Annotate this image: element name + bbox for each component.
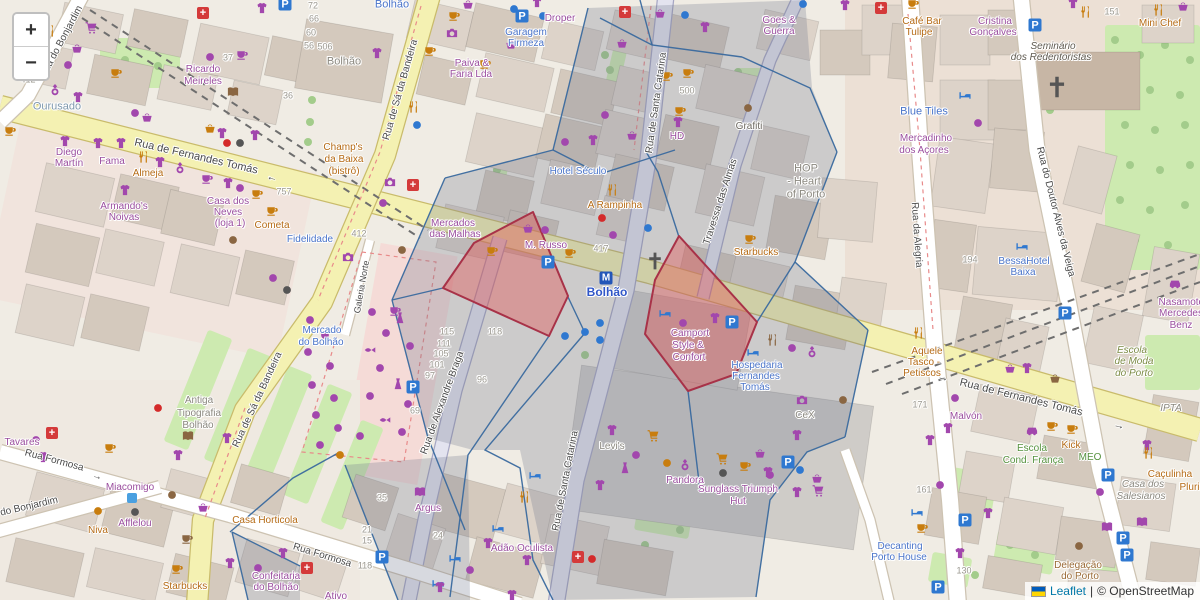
ts-icon xyxy=(60,136,69,146)
cup-icon xyxy=(745,235,755,244)
ts-icon xyxy=(116,138,125,148)
ts-icon xyxy=(925,435,934,445)
dot-icon xyxy=(561,138,569,146)
dot-icon xyxy=(269,274,277,282)
ts-icon xyxy=(522,555,531,565)
dot-icon xyxy=(236,139,244,147)
ts-icon xyxy=(217,128,226,138)
bk-icon xyxy=(142,114,151,122)
fk-icon xyxy=(1154,4,1162,15)
ts-icon xyxy=(93,138,102,148)
dot-icon xyxy=(376,364,384,372)
cup-icon xyxy=(565,249,575,258)
dot-icon xyxy=(1075,542,1083,550)
cup-icon xyxy=(675,107,685,116)
ts-icon xyxy=(250,130,259,140)
dot-icon xyxy=(64,61,72,69)
fk-icon xyxy=(768,334,776,345)
dot-icon xyxy=(406,342,414,350)
dot-icon xyxy=(366,392,374,400)
dot-icon xyxy=(681,11,689,19)
rg-icon xyxy=(682,459,689,470)
car-icon xyxy=(1170,281,1180,289)
cup-icon xyxy=(487,247,497,256)
dot-icon xyxy=(644,224,652,232)
dot-icon xyxy=(719,469,727,477)
dot-icon xyxy=(796,466,804,474)
ts-icon xyxy=(1068,0,1077,8)
dot-icon xyxy=(561,332,569,340)
ts-icon xyxy=(222,433,231,443)
bk-icon xyxy=(655,10,664,18)
dot-icon xyxy=(312,411,320,419)
cr-icon xyxy=(1050,77,1064,97)
bo-icon xyxy=(228,87,238,96)
bk-icon xyxy=(812,475,821,483)
bo-icon xyxy=(415,487,425,496)
cup-icon xyxy=(449,12,459,21)
dot-icon xyxy=(466,566,474,574)
cup-icon xyxy=(5,127,15,136)
dot-icon xyxy=(254,564,262,572)
cup-icon xyxy=(237,51,247,60)
dot-icon xyxy=(131,109,139,117)
ts-icon xyxy=(155,157,164,167)
dot-icon xyxy=(936,481,944,489)
attribution-separator: | xyxy=(1090,584,1093,598)
ts-icon xyxy=(483,538,492,548)
dot-icon xyxy=(398,246,406,254)
cup-icon xyxy=(111,69,121,78)
cup-icon xyxy=(252,190,262,199)
ts-icon xyxy=(532,0,541,7)
bk-icon xyxy=(1050,375,1059,383)
dot-icon xyxy=(404,400,412,408)
dot-icon xyxy=(321,331,329,339)
ts-icon xyxy=(792,430,801,440)
bk-icon xyxy=(72,45,81,53)
dot-icon xyxy=(744,104,752,112)
fk-icon xyxy=(520,491,528,502)
rg-icon xyxy=(52,84,59,95)
cup-icon xyxy=(105,444,115,453)
ct-icon xyxy=(86,22,97,33)
bd-icon xyxy=(492,525,503,532)
ts-icon xyxy=(840,0,849,10)
bo-icon xyxy=(183,431,193,440)
dot-icon xyxy=(413,121,421,129)
cam-icon xyxy=(385,178,395,186)
zoom-out-button[interactable]: − xyxy=(14,47,48,79)
dot-icon xyxy=(596,319,604,327)
bd-icon xyxy=(959,92,970,99)
dot-icon xyxy=(334,424,342,432)
dot-icon xyxy=(663,459,671,467)
cam-icon xyxy=(447,29,457,37)
dot-icon xyxy=(308,381,316,389)
dot-icon xyxy=(223,139,231,147)
map-icons-layer xyxy=(0,0,1200,600)
dot-icon xyxy=(541,226,549,234)
cam-icon xyxy=(343,253,353,261)
dot-icon xyxy=(356,432,364,440)
bk-icon xyxy=(627,132,636,140)
ts-icon xyxy=(278,548,287,558)
rg-icon xyxy=(177,162,184,173)
ts-icon xyxy=(257,3,266,13)
dot-icon xyxy=(839,396,847,404)
fk-icon xyxy=(409,101,417,112)
dot-icon xyxy=(598,214,606,222)
ts-icon xyxy=(372,48,381,58)
bo-icon xyxy=(1137,517,1147,526)
dr-icon xyxy=(395,378,402,389)
dot-icon xyxy=(596,336,604,344)
bk-icon xyxy=(617,40,626,48)
dot-icon xyxy=(32,436,40,444)
cup-icon xyxy=(662,72,672,81)
cup-icon xyxy=(480,60,490,69)
ts-icon xyxy=(73,92,82,102)
ukraine-flag-icon xyxy=(1031,586,1046,597)
cup-icon xyxy=(202,175,212,184)
map-canvas[interactable]: PPPPPPPPPPPPPPM+++++++ 50641237367266605… xyxy=(0,0,1200,600)
bd-icon xyxy=(911,509,922,516)
ct-icon xyxy=(648,430,659,441)
ts-icon xyxy=(595,480,604,490)
cup-icon xyxy=(683,69,693,78)
dot-icon xyxy=(131,508,139,516)
dot-icon xyxy=(368,308,376,316)
dot-icon xyxy=(601,111,609,119)
ts-icon xyxy=(983,508,992,518)
dot-icon xyxy=(304,348,312,356)
dot-icon xyxy=(168,491,176,499)
ts-icon xyxy=(955,548,964,558)
ts-icon xyxy=(173,450,182,460)
bd-icon xyxy=(659,310,670,317)
fi-icon xyxy=(365,347,376,352)
dot-icon xyxy=(398,428,406,436)
dr-icon xyxy=(397,312,404,323)
dot-icon xyxy=(382,329,390,337)
ts-icon xyxy=(792,487,801,497)
cr-icon xyxy=(649,253,661,270)
bo-icon xyxy=(1102,522,1112,531)
cup-icon xyxy=(740,462,750,471)
bk-icon xyxy=(463,1,472,9)
bd-icon xyxy=(449,555,460,562)
ts-icon xyxy=(943,423,952,433)
cam-icon xyxy=(797,396,807,404)
ct-icon xyxy=(717,453,728,464)
dot-icon xyxy=(229,236,237,244)
ts-icon xyxy=(588,135,597,145)
dot-icon xyxy=(336,451,344,459)
bk-icon xyxy=(755,450,764,458)
ts-icon xyxy=(38,452,47,462)
ts-icon xyxy=(710,313,719,323)
dot-icon xyxy=(330,394,338,402)
dot-icon xyxy=(581,328,589,336)
dot-icon xyxy=(236,184,244,192)
leaflet-link[interactable]: Leaflet xyxy=(1050,584,1086,598)
bk-icon xyxy=(523,225,532,233)
dot-icon xyxy=(788,344,796,352)
bk-icon xyxy=(205,125,214,133)
ts-icon xyxy=(1022,363,1031,373)
dr-icon xyxy=(622,462,629,473)
ts-icon xyxy=(673,117,682,127)
cup-icon xyxy=(1047,422,1057,431)
dot-icon xyxy=(588,555,596,563)
dot-icon xyxy=(379,199,387,207)
cup-icon xyxy=(182,535,192,544)
attribution-bar: Leaflet | © OpenStreetMap xyxy=(1025,582,1200,600)
dot-icon xyxy=(326,362,334,370)
dot-icon xyxy=(632,451,640,459)
ts-icon xyxy=(120,185,129,195)
bk-icon xyxy=(506,41,515,49)
dot-icon xyxy=(974,119,982,127)
dot-icon xyxy=(609,231,617,239)
cup-icon xyxy=(1067,425,1077,434)
car-icon xyxy=(1027,428,1037,436)
ct-icon xyxy=(813,485,824,496)
cup-icon xyxy=(267,207,277,216)
bd-icon xyxy=(1016,243,1027,250)
dot-icon xyxy=(679,319,687,327)
ts-icon xyxy=(700,22,709,32)
cup-icon xyxy=(917,524,927,533)
dot-icon xyxy=(951,394,959,402)
ts-icon xyxy=(225,558,234,568)
fk-icon xyxy=(1081,6,1089,17)
dot-icon xyxy=(316,441,324,449)
dot-icon xyxy=(94,507,102,515)
bd-icon xyxy=(529,472,540,479)
cup-icon xyxy=(425,47,435,56)
cup-icon xyxy=(908,0,918,9)
ts-icon xyxy=(507,590,516,600)
dot-icon xyxy=(154,404,162,412)
bk-icon xyxy=(1005,365,1014,373)
fi-icon xyxy=(380,417,391,422)
bk-icon xyxy=(198,504,207,512)
fk-icon xyxy=(139,151,147,162)
dot-icon xyxy=(306,316,314,324)
bd-icon xyxy=(747,349,758,356)
fk-icon xyxy=(914,327,922,338)
osm-copyright: © OpenStreetMap xyxy=(1097,584,1194,598)
rg-icon xyxy=(809,346,816,357)
bk-icon xyxy=(1178,3,1187,11)
zoom-control: + − xyxy=(12,12,50,81)
cup-icon xyxy=(172,565,182,574)
dot-icon xyxy=(283,286,291,294)
dot-icon xyxy=(510,5,518,13)
dot-icon xyxy=(206,53,214,61)
ts-icon xyxy=(607,425,616,435)
dot-icon xyxy=(1096,488,1104,496)
ts-icon xyxy=(223,178,232,188)
zoom-in-button[interactable]: + xyxy=(14,14,48,47)
ts-icon xyxy=(435,582,444,592)
dot-icon xyxy=(539,12,547,20)
fk-icon xyxy=(608,184,616,195)
dot-icon xyxy=(799,0,807,8)
